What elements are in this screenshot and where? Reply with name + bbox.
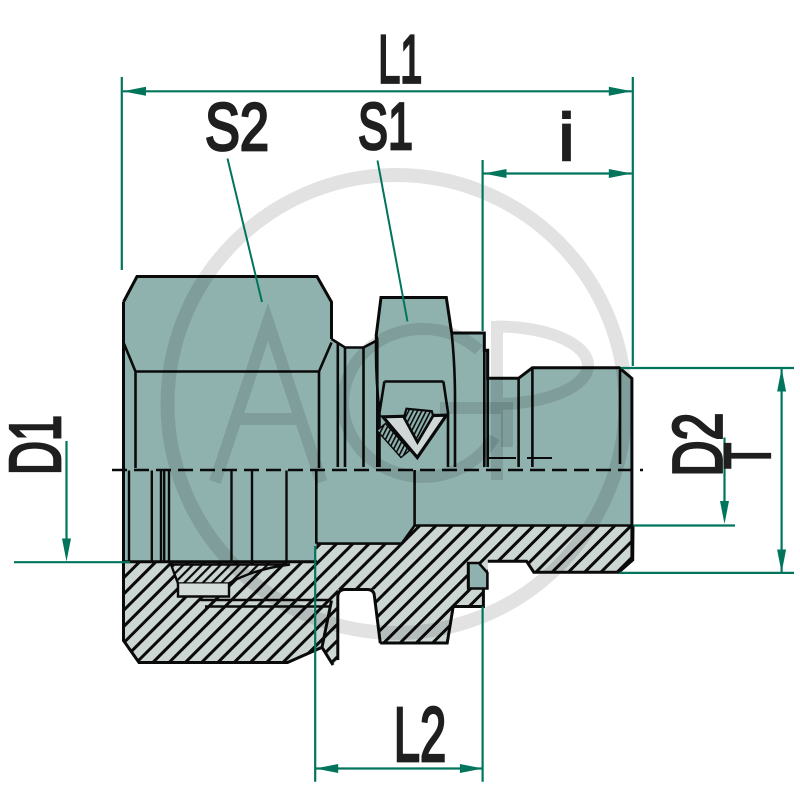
- svg-text:D1: D1: [0, 415, 76, 475]
- svg-text:L1: L1: [378, 22, 422, 98]
- svg-text:T: T: [711, 443, 784, 469]
- svg-text:i: i: [559, 100, 574, 174]
- svg-text:S2: S2: [205, 90, 269, 165]
- svg-text:L2: L2: [394, 692, 447, 778]
- svg-text:S1: S1: [358, 89, 413, 163]
